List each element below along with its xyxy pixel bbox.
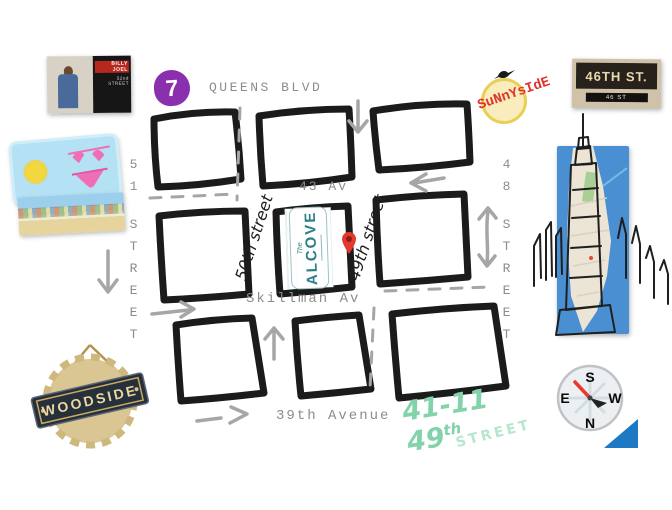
compass-w: W	[608, 390, 622, 406]
dashed-skillman-east	[385, 287, 489, 291]
city-block	[259, 109, 352, 186]
39th-avenue-label: 39th Avenue	[276, 408, 390, 424]
alcove-logo-name: ALCOVE	[302, 210, 320, 285]
pin-body	[342, 232, 356, 254]
compass-e: E	[560, 390, 569, 406]
pin-hole	[346, 236, 352, 242]
compass: S E W N	[554, 360, 626, 436]
arrow-double-vertical-48st	[479, 208, 496, 266]
compass-pivot	[588, 396, 593, 401]
bridge-line	[603, 168, 627, 186]
city-block	[373, 104, 470, 170]
dashed-43av-west	[150, 194, 236, 198]
city-block	[376, 194, 468, 284]
alcove-logo: The ALCOVE	[289, 206, 330, 289]
city-block	[295, 315, 371, 396]
compass-n: N	[585, 415, 595, 431]
43av-label: 43 Av	[299, 179, 348, 194]
woodside-badge: WOODSIDE	[28, 333, 154, 453]
alcove-logo-rule	[320, 235, 322, 261]
compass-s: S	[585, 369, 594, 385]
arrow-right-39th	[197, 407, 247, 423]
dashed-49th-south	[370, 308, 374, 389]
arrow-left	[411, 174, 444, 191]
skillman-av-label: Skillman Av	[246, 291, 360, 307]
map-canvas: BILLY JOEL 52nd STREET 7 QUEENS BLVD SuN…	[0, 0, 672, 510]
city-block	[176, 318, 264, 401]
manhattan-island	[557, 146, 629, 334]
alcove-storefront-card: The ALCOVE	[285, 207, 334, 289]
arrow-up-39th	[265, 328, 283, 359]
arrow-down-51st	[99, 251, 117, 292]
map-marker-dot	[589, 256, 593, 260]
city-block	[154, 112, 241, 187]
location-pin-icon	[341, 231, 357, 255]
manhattan-map-photo	[557, 146, 629, 334]
arrow-right-skillman	[152, 302, 194, 317]
